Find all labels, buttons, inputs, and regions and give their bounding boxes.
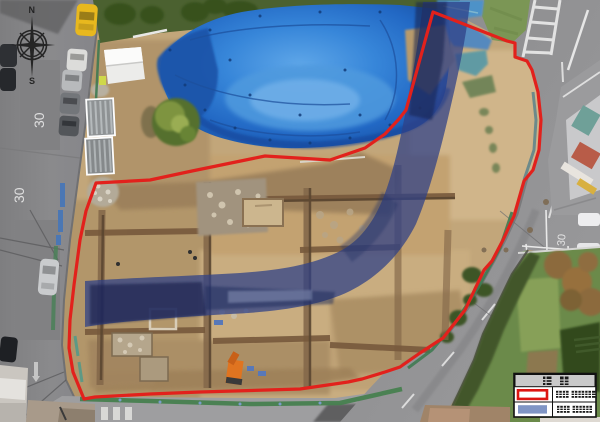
svg-text:S: S: [29, 76, 35, 86]
svg-text:30: 30: [555, 233, 568, 246]
svg-text:N: N: [29, 5, 36, 15]
svg-text:30: 30: [11, 187, 27, 203]
svg-text:30: 30: [31, 112, 47, 128]
